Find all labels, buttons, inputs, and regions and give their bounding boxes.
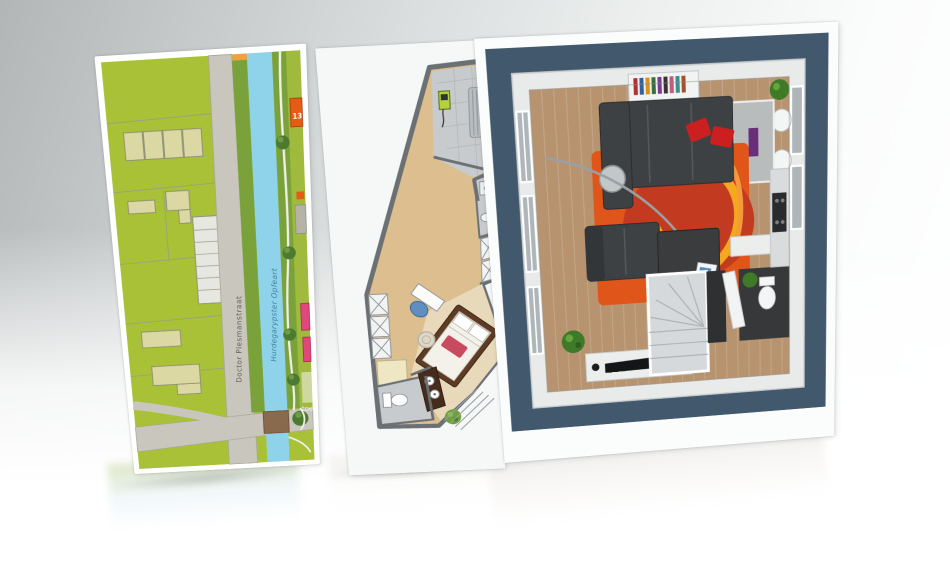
house-number-label: 13 [292,111,302,120]
floorplan3d-panel[interactable] [474,22,839,463]
light-parcel [301,372,312,403]
site-map-artwork: Doctor Plesmanstraat Hurdegarypster Opfe… [94,44,320,475]
floorplan3d-artwork [474,22,839,463]
bridge [263,410,289,433]
round-rug [418,332,435,348]
table-runner [748,128,758,157]
partial-label: toe [302,404,314,413]
canal-water-south [266,431,290,463]
hob [772,192,786,232]
rendered-scene: Doctor Plesmanstraat Hurdegarypster Opfe… [0,0,950,570]
pink-house-1 [301,303,310,330]
floorplan2d-artwork [315,39,505,475]
gray-building [295,205,307,234]
toilet-tank [759,276,774,286]
sofa-chaise [599,102,633,210]
site-map-panel[interactable]: Doctor Plesmanstraat Hurdegarypster Opfe… [94,44,320,475]
toilet-bowl [391,394,408,406]
pink-house-2 [303,337,311,362]
stairs [647,272,708,376]
canal-label: Hurdegarypster Opfeart [269,268,279,362]
toilet-tank [383,393,392,408]
side-table [599,165,626,193]
sofa-second [585,222,661,281]
floorplan2d-panel[interactable] [315,39,505,475]
closets-left [369,294,392,359]
orange-shed [296,191,304,199]
road-label: Doctor Plesmanstraat [234,295,243,382]
books [633,76,685,96]
island [731,234,771,256]
